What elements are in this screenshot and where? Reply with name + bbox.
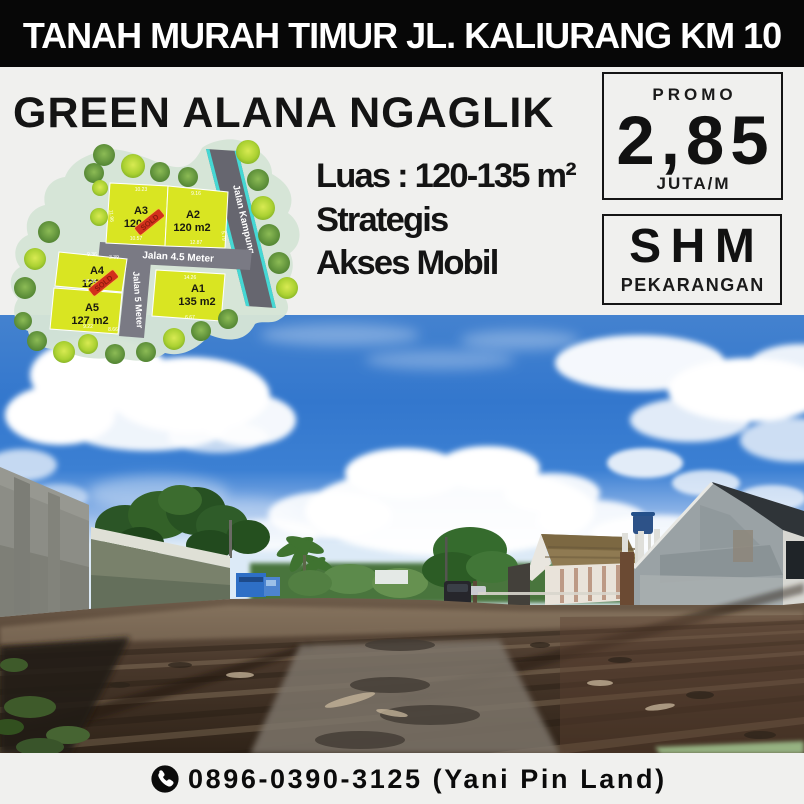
svg-text:5.79: 5.79 — [220, 231, 227, 241]
svg-text:120 m2: 120 m2 — [173, 222, 210, 234]
svg-text:8.66: 8.66 — [108, 327, 118, 333]
svg-text:14.26: 14.26 — [184, 275, 197, 281]
svg-text:10.57: 10.57 — [130, 236, 143, 242]
svg-text:135 m2: 135 m2 — [178, 296, 215, 308]
svg-text:9.16: 9.16 — [191, 191, 201, 197]
svg-text:12.87: 12.87 — [190, 240, 203, 246]
svg-text:9.22: 9.22 — [83, 324, 93, 330]
svg-text:A2: A2 — [186, 209, 200, 221]
svg-text:6.67: 6.67 — [185, 315, 195, 321]
svg-text:A3: A3 — [134, 205, 148, 217]
svg-text:A5: A5 — [85, 302, 99, 314]
svg-text:A4: A4 — [90, 265, 105, 277]
svg-text:3.39: 3.39 — [109, 255, 119, 261]
svg-text:A1: A1 — [191, 283, 205, 295]
svg-text:10.23: 10.23 — [135, 187, 148, 193]
svg-text:9.36: 9.36 — [87, 252, 97, 258]
svg-text:11.96: 11.96 — [107, 210, 114, 223]
